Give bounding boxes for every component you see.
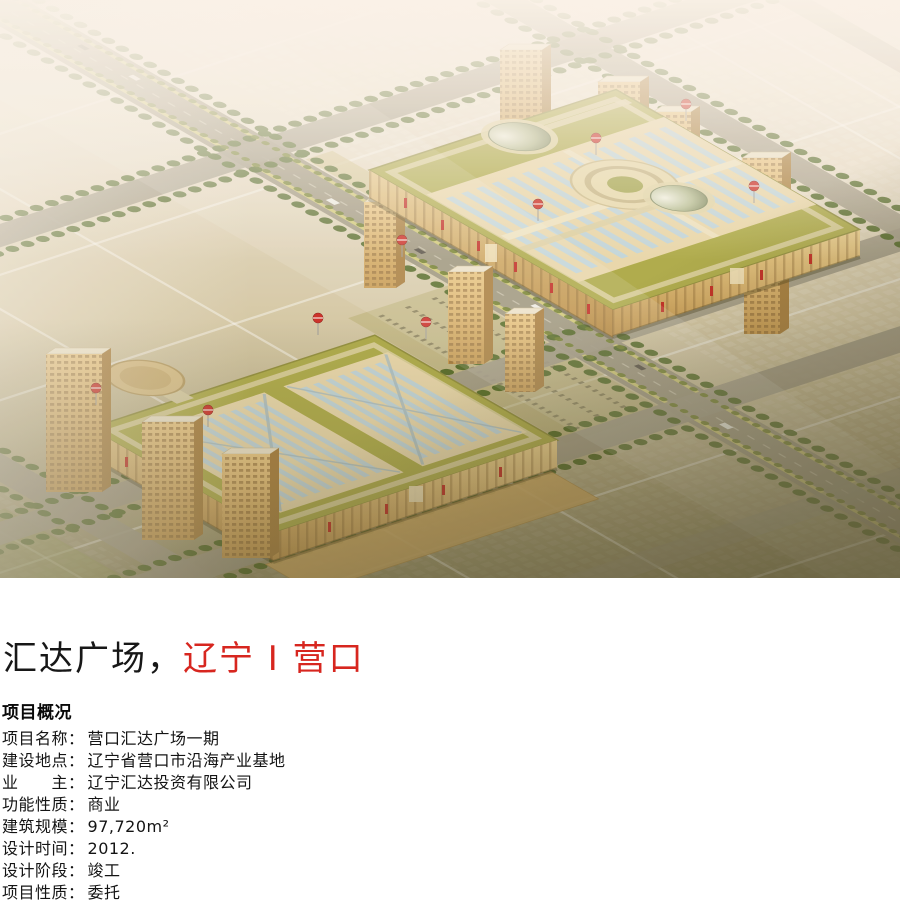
spec-value: 营口汇达广场一期 bbox=[88, 729, 220, 748]
spec-value: 委托 bbox=[88, 883, 121, 902]
spec-label: 建设地点： bbox=[2, 751, 85, 770]
spec-label: 项目名称： bbox=[2, 729, 85, 748]
spec-row: 设计阶段：竣工 bbox=[2, 860, 286, 882]
spec-value: 辽宁汇达投资有限公司 bbox=[88, 773, 253, 792]
spec-label: 业 主： bbox=[2, 773, 85, 792]
spec-row: 设计时间：2012. bbox=[2, 838, 286, 860]
project-overview-list: 项目名称：营口汇达广场一期 建设地点：辽宁省营口市沿海产业基地 业 主：辽宁汇达… bbox=[2, 728, 286, 904]
spec-value: 商业 bbox=[88, 795, 121, 814]
spec-row: 项目性质：委托 bbox=[2, 882, 286, 904]
spec-value: 辽宁省营口市沿海产业基地 bbox=[88, 751, 286, 770]
spec-value: 2012. bbox=[88, 839, 136, 858]
spec-row: 业 主：辽宁汇达投资有限公司 bbox=[2, 772, 286, 794]
spec-label: 设计阶段： bbox=[2, 861, 85, 880]
title-location: 辽宁 I 营口 bbox=[183, 639, 365, 679]
spec-row: 项目名称：营口汇达广场一期 bbox=[2, 728, 286, 750]
spec-label: 设计时间： bbox=[2, 839, 85, 858]
spec-value: 97,720m² bbox=[88, 817, 170, 836]
overview-heading: 项目概况 bbox=[2, 703, 72, 723]
spec-row: 功能性质：商业 bbox=[2, 794, 286, 816]
spec-label: 项目性质： bbox=[2, 883, 85, 902]
page-title: 汇达广场，辽宁 I 营口 bbox=[3, 638, 365, 680]
spec-value: 竣工 bbox=[88, 861, 121, 880]
aerial-rendering-canvas bbox=[0, 0, 900, 578]
title-project-name: 汇达广场， bbox=[3, 639, 183, 679]
spec-label: 功能性质： bbox=[2, 795, 85, 814]
warm-tint-overlay bbox=[0, 0, 900, 578]
spec-row: 建设地点：辽宁省营口市沿海产业基地 bbox=[2, 750, 286, 772]
spec-label: 建筑规模： bbox=[2, 817, 85, 836]
aerial-rendering bbox=[0, 0, 900, 578]
spec-row: 建筑规模：97,720m² bbox=[2, 816, 286, 838]
